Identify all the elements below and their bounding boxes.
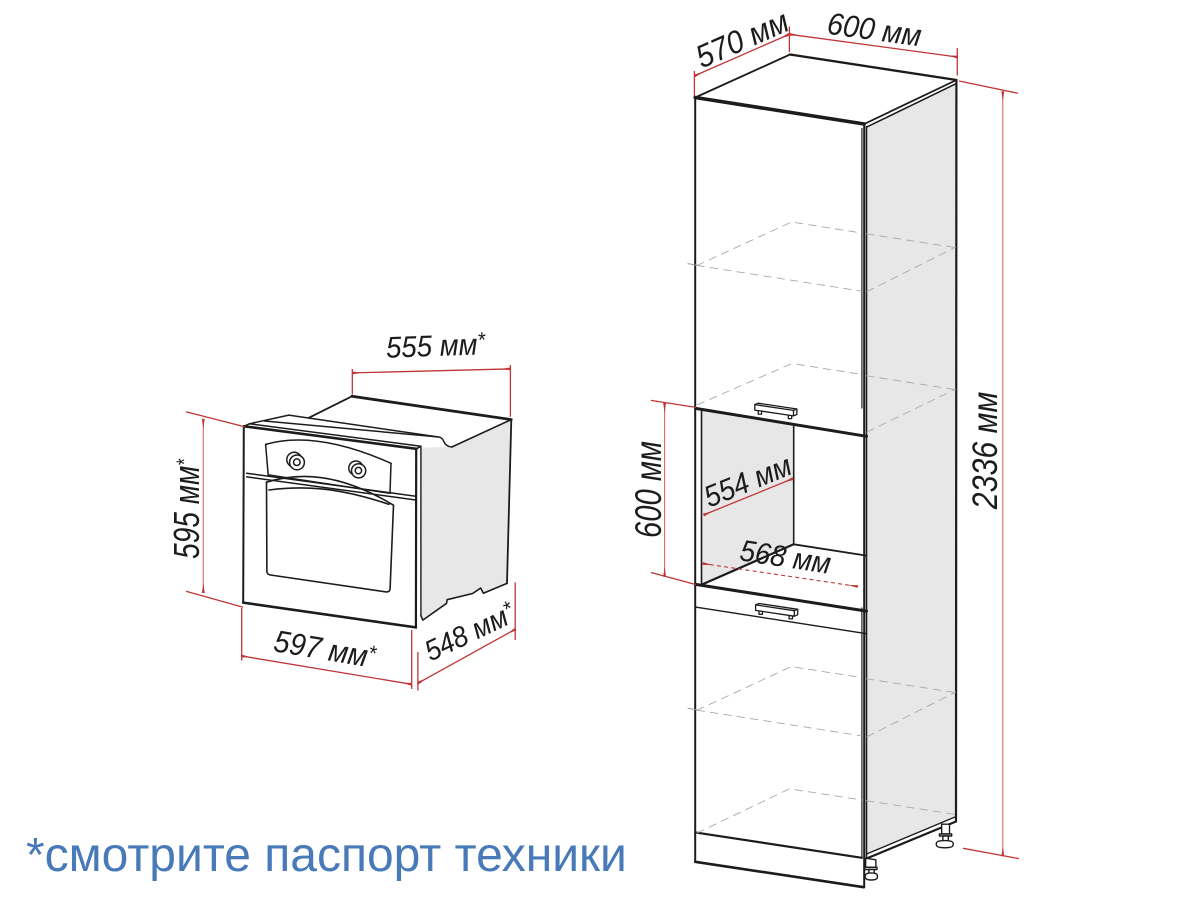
svg-text:555 мм*: 555 мм*	[385, 328, 486, 365]
svg-text:*смотрите паспорт техники: *смотрите паспорт техники	[26, 829, 627, 882]
svg-text:2336 мм: 2336 мм	[965, 392, 1005, 510]
svg-text:595 мм*: 595 мм*	[167, 458, 207, 559]
svg-text:600 мм: 600 мм	[629, 441, 670, 538]
